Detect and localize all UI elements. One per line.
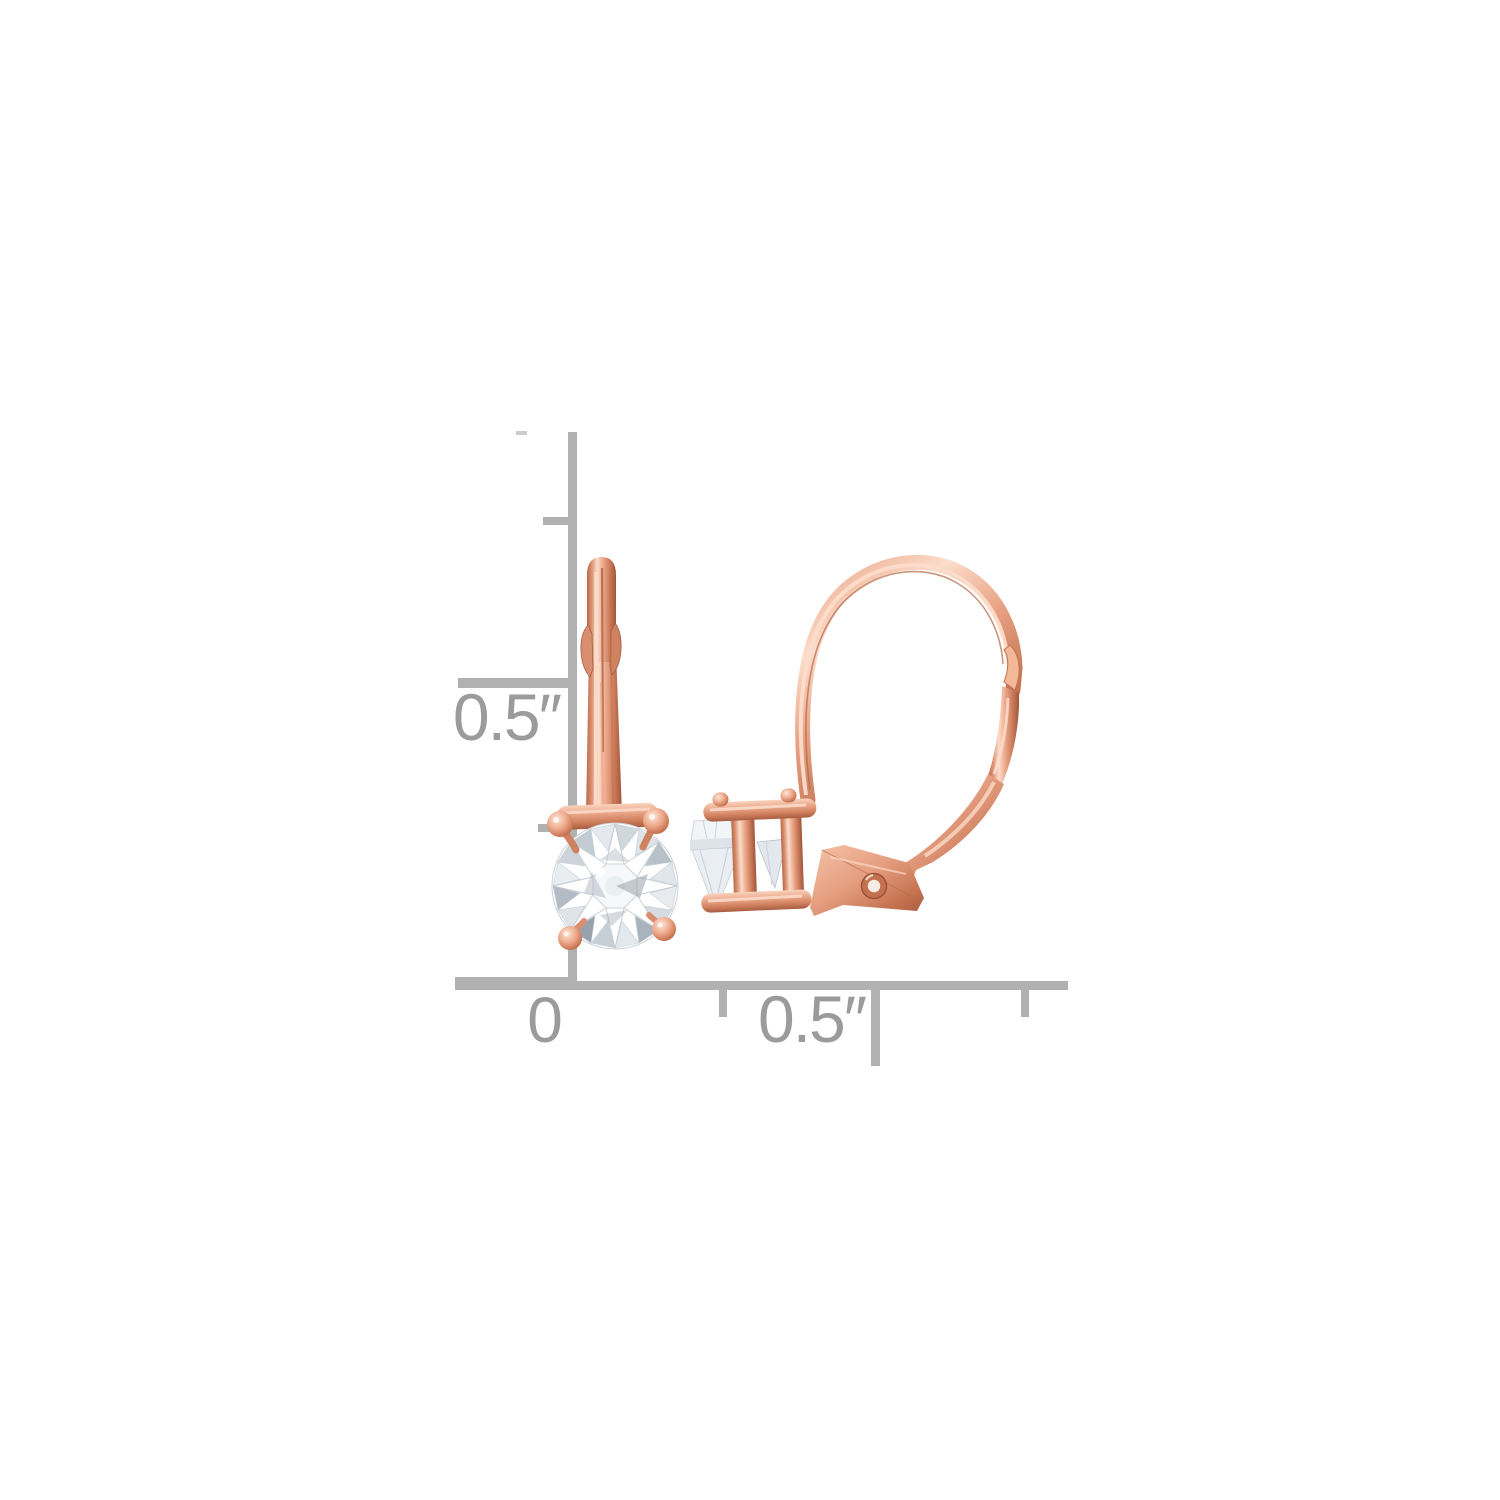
left-earring: [547, 557, 678, 950]
prong-ball: [547, 811, 573, 837]
earrings-illustration: [0, 0, 1500, 1500]
prong-ball: [652, 917, 676, 941]
product-photo-scene: 0.5″ 0 0.5″: [0, 0, 1500, 1500]
lever-flap-left: [581, 625, 593, 677]
basket-post: [780, 807, 804, 904]
right-earring: [690, 562, 1019, 916]
prong-ball: [643, 808, 669, 834]
prong-ball: [558, 926, 582, 950]
leverback-shaft: [586, 650, 622, 814]
